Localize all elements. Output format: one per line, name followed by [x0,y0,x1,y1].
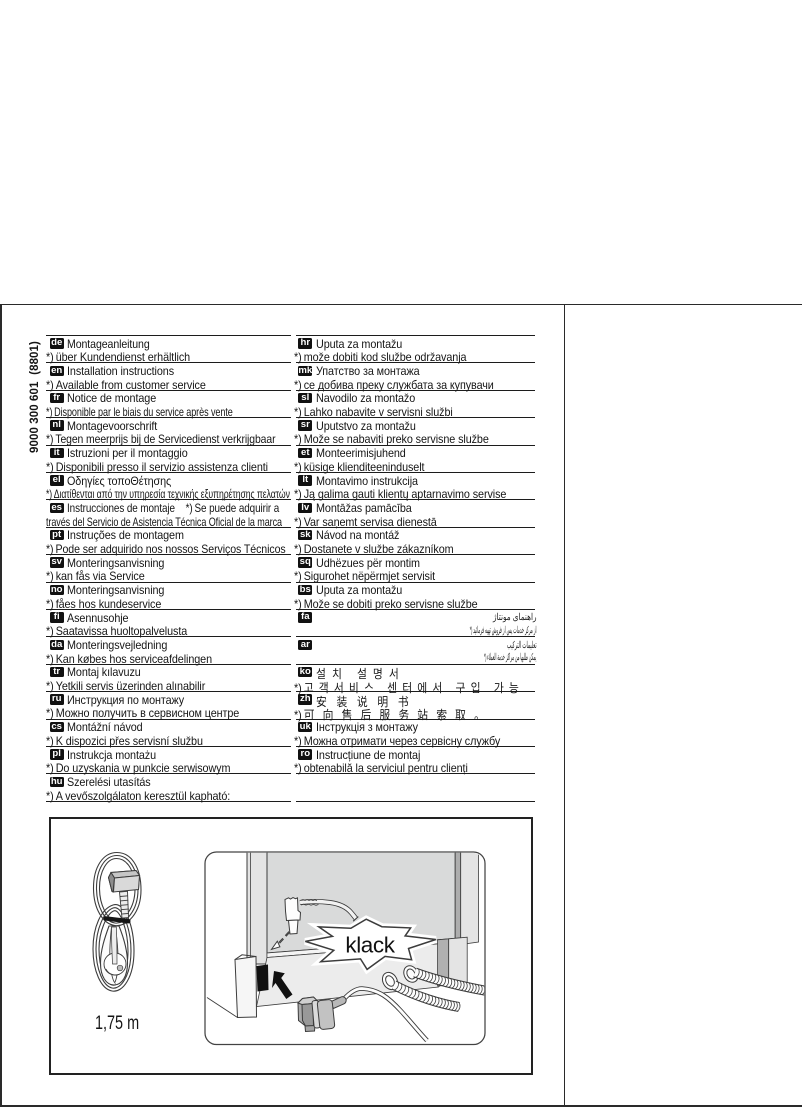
svg-text:klack: klack [345,933,395,958]
